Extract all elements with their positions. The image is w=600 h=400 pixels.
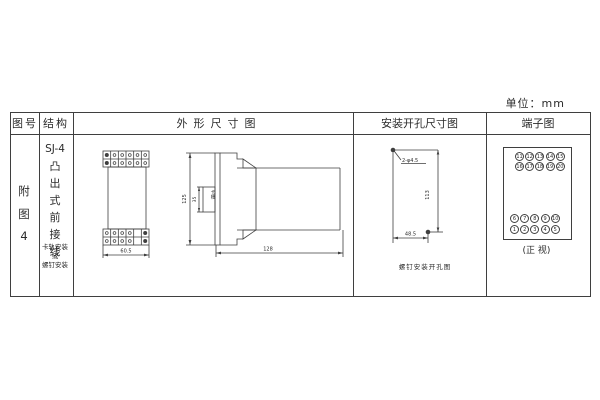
- dim-hole-horizontal: 48.5: [405, 232, 416, 238]
- terminal-circle: 18: [535, 162, 544, 171]
- dim-height: 125: [182, 194, 188, 204]
- dim-hole-vertical: 113: [425, 190, 431, 200]
- terminal-circle: 5: [551, 225, 560, 234]
- mount-note-line: 螺钉安装: [38, 261, 72, 270]
- mounting-hole-drawing: 2-φ4.5 113 48.5: [370, 140, 480, 275]
- terminal-circle: 16: [515, 162, 524, 171]
- header-outline-dims: 外形尺寸图: [73, 113, 359, 134]
- terminal-circle: 8: [530, 214, 539, 223]
- terminal-circle: 17: [525, 162, 534, 171]
- datasheet-page: 单位：mm 图号 结构 外形尺寸图 安装开孔尺寸图 端子图 附 图 4 SJ-4…: [0, 0, 600, 400]
- front-view-drawing: 60.5: [95, 145, 175, 270]
- mounting-note: 卡轨安装 或 螺钉安装: [38, 243, 72, 270]
- terminal-circle: 6: [510, 214, 519, 223]
- terminal-circle: 9: [541, 214, 550, 223]
- terminal-circle: 20: [556, 162, 565, 171]
- figure-char: 4: [20, 229, 27, 243]
- terminal-circle: 4: [541, 225, 550, 234]
- header-figure-no: 图号: [11, 113, 39, 134]
- figure-char: 附: [18, 183, 30, 199]
- figure-number: 附 图 4: [10, 183, 38, 243]
- terminal-circle: 1: [510, 225, 519, 234]
- terminal-circle: 14: [546, 152, 555, 161]
- dim-slot: 35: [192, 197, 198, 203]
- dim-depth: 128: [263, 247, 273, 253]
- column-divider-2: [73, 113, 74, 296]
- terminal-row-upper-1: 11 12 13 14 15: [515, 152, 565, 161]
- terminal-circle: 12: [525, 152, 534, 161]
- dim-front-width: 60.5: [120, 249, 131, 255]
- type-char: 凸: [50, 158, 61, 174]
- terminal-circle: 7: [520, 214, 529, 223]
- header-structure: 结构: [39, 113, 73, 134]
- terminal-row-lower-2: 1 2 3 4 5: [510, 225, 560, 234]
- header-terminals: 端子图: [486, 113, 590, 134]
- terminal-circle: 11: [515, 152, 524, 161]
- terminal-circle: 2: [520, 225, 529, 234]
- terminal-circle: 3: [530, 225, 539, 234]
- type-char: 式: [50, 192, 61, 208]
- terminal-row-lower-1: 6 7 8 9 10: [510, 214, 560, 223]
- terminal-view-caption: (正 视): [498, 243, 575, 256]
- terminal-diagram-box: 11 12 13 14 15 16 17 18 19 20 6 7 8 9 10…: [503, 147, 572, 240]
- header-mounting-dims: 安装开孔尺寸图: [353, 113, 486, 134]
- terminal-row-upper-2: 16 17 18 19 20: [515, 162, 565, 171]
- terminal-circle: 19: [546, 162, 555, 171]
- type-char: 出: [50, 175, 61, 191]
- figure-char: 图: [18, 206, 30, 222]
- mount-note-line: 或: [38, 252, 72, 261]
- mount-note-line: 卡轨安装: [38, 243, 72, 252]
- unit-label: 单位：mm: [440, 95, 565, 111]
- model-label: SJ-4: [38, 143, 72, 155]
- terminal-circle: 15: [556, 152, 565, 161]
- side-view-drawing: 125 35 128: [180, 140, 350, 265]
- type-char: 接: [50, 226, 61, 242]
- slot-label: 卡槽: [208, 190, 216, 199]
- header-rule: [11, 134, 590, 135]
- type-char: 前: [50, 209, 61, 225]
- terminal-circle: 13: [535, 152, 544, 161]
- column-divider-3: [353, 113, 354, 296]
- column-divider-4: [486, 113, 487, 296]
- mounting-caption: 螺钉安装开孔图: [370, 261, 480, 271]
- terminal-circle: 10: [551, 214, 560, 223]
